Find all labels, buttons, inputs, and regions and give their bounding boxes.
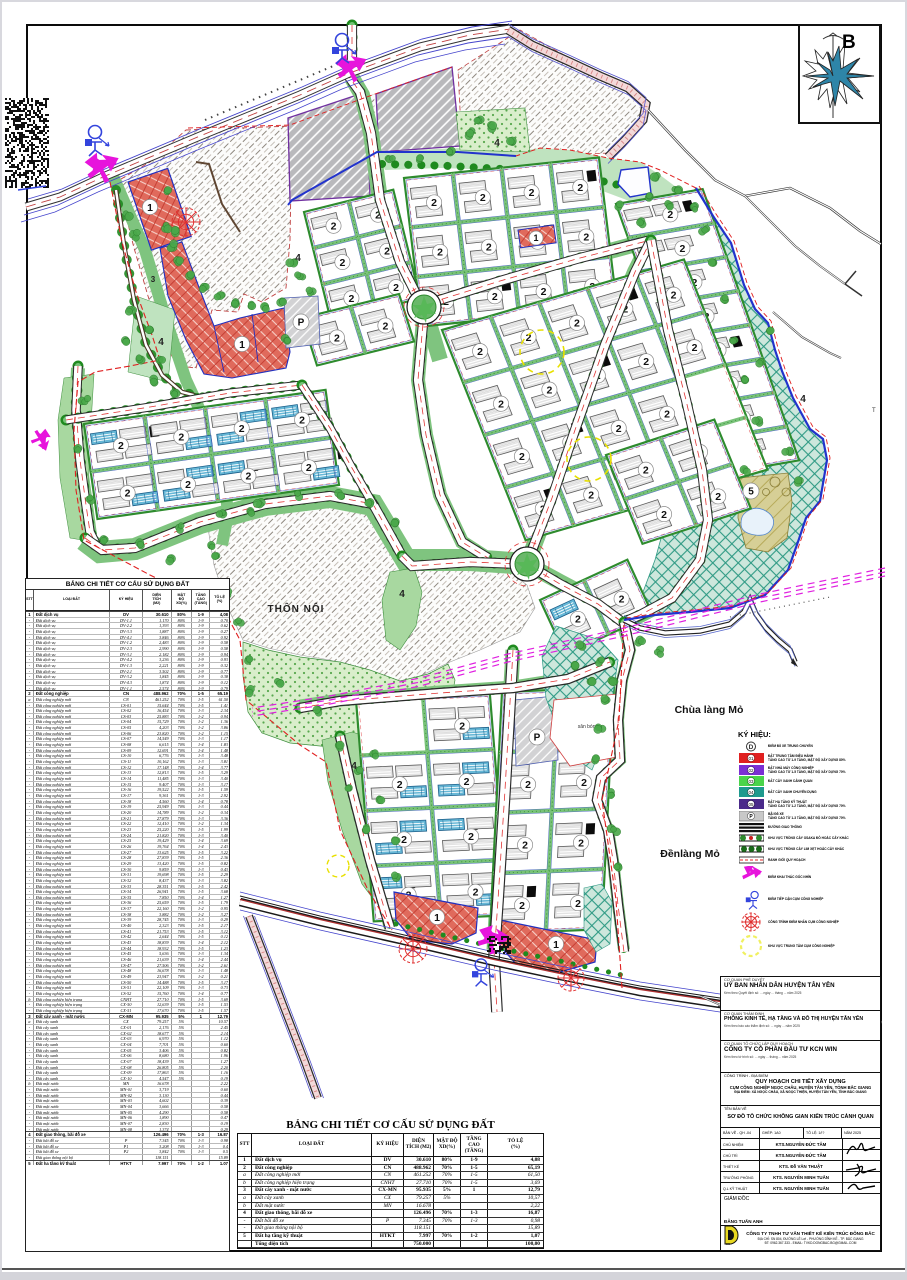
svg-text:2: 2 [334, 332, 340, 344]
svg-text:2: 2 [667, 209, 673, 221]
svg-text:4: 4 [351, 761, 357, 772]
svg-text:1: 1 [239, 339, 245, 351]
svg-text:2: 2 [575, 614, 581, 626]
svg-text:2: 2 [575, 898, 581, 910]
svg-text:2: 2 [384, 246, 390, 258]
svg-text:2: 2 [397, 779, 403, 791]
svg-text:4: 4 [158, 337, 164, 348]
svg-text:4: 4 [800, 394, 806, 405]
svg-text:2: 2 [431, 197, 437, 209]
svg-text:2: 2 [464, 776, 470, 788]
svg-text:2: 2 [616, 423, 622, 435]
svg-text:2: 2 [401, 834, 407, 846]
svg-text:2: 2 [498, 399, 504, 411]
svg-text:2: 2 [525, 779, 531, 791]
svg-text:2: 2 [393, 282, 399, 294]
svg-text:2: 2 [577, 182, 583, 194]
svg-text:2: 2 [473, 887, 479, 899]
svg-text:2: 2 [459, 721, 465, 733]
svg-text:P: P [298, 318, 305, 329]
svg-text:2: 2 [715, 491, 721, 503]
svg-text:2: 2 [178, 432, 184, 444]
svg-text:2: 2 [574, 318, 580, 330]
svg-text:THÔN NỘI: THÔN NỘI [268, 602, 325, 615]
svg-text:2: 2 [185, 479, 191, 491]
svg-text:2: 2 [125, 488, 131, 500]
svg-text:4: 4 [494, 138, 500, 149]
svg-text:2: 2 [546, 384, 552, 396]
svg-text:2: 2 [619, 594, 625, 606]
svg-text:2: 2 [299, 415, 305, 427]
svg-text:2: 2 [486, 242, 492, 254]
svg-text:Đềnlàng Mỏ: Đềnlàng Mỏ [660, 848, 720, 860]
svg-text:T: T [872, 408, 876, 414]
svg-text:5: 5 [748, 487, 754, 498]
svg-text:2: 2 [541, 286, 547, 298]
svg-text:2: 2 [477, 346, 483, 358]
svg-text:2: 2 [661, 509, 667, 521]
svg-text:2: 2 [437, 247, 443, 259]
svg-text:P: P [534, 733, 541, 744]
svg-text:2: 2 [480, 192, 486, 204]
svg-text:04: 04 [748, 790, 754, 795]
svg-text:1: 1 [533, 233, 538, 243]
svg-text:2: 2 [588, 489, 594, 501]
svg-text:2: 2 [671, 290, 677, 302]
svg-text:2: 2 [581, 777, 587, 789]
svg-text:03: 03 [748, 779, 754, 784]
svg-text:2: 2 [239, 423, 245, 435]
svg-text:2: 2 [529, 187, 535, 199]
svg-text:B: B [842, 32, 856, 53]
svg-text:2: 2 [664, 409, 670, 421]
svg-text:2: 2 [331, 221, 337, 233]
svg-text:2: 2 [578, 837, 584, 849]
svg-text:D: D [749, 744, 754, 751]
svg-text:2: 2 [348, 293, 354, 305]
svg-text:2: 2 [245, 471, 251, 483]
svg-text:2: 2 [583, 231, 589, 243]
svg-text:2: 2 [492, 291, 498, 303]
svg-text:02: 02 [748, 768, 754, 773]
svg-text:1: 1 [147, 202, 153, 214]
svg-text:05: 05 [748, 802, 754, 807]
svg-text:ĐB: ĐB [726, 1242, 730, 1246]
svg-text:2: 2 [692, 342, 698, 354]
svg-text:2: 2 [643, 465, 649, 477]
svg-text:2: 2 [519, 451, 525, 463]
svg-text:2: 2 [522, 840, 528, 852]
svg-text:1: 1 [434, 912, 440, 924]
svg-text:2: 2 [519, 900, 525, 912]
svg-text:1: 1 [553, 939, 559, 951]
svg-text:4: 4 [295, 253, 301, 264]
svg-text:2: 2 [679, 243, 685, 255]
svg-text:4: 4 [399, 589, 405, 600]
svg-text:2: 2 [468, 831, 474, 843]
svg-text:Chùa làng Mỏ: Chùa làng Mỏ [675, 704, 744, 716]
svg-text:3: 3 [151, 275, 156, 284]
svg-text:2: 2 [339, 257, 345, 269]
svg-text:2: 2 [306, 462, 312, 474]
svg-text:2: 2 [382, 320, 388, 332]
svg-text:2: 2 [118, 440, 124, 452]
svg-text:2: 2 [643, 356, 649, 368]
svg-text:01: 01 [748, 756, 754, 761]
